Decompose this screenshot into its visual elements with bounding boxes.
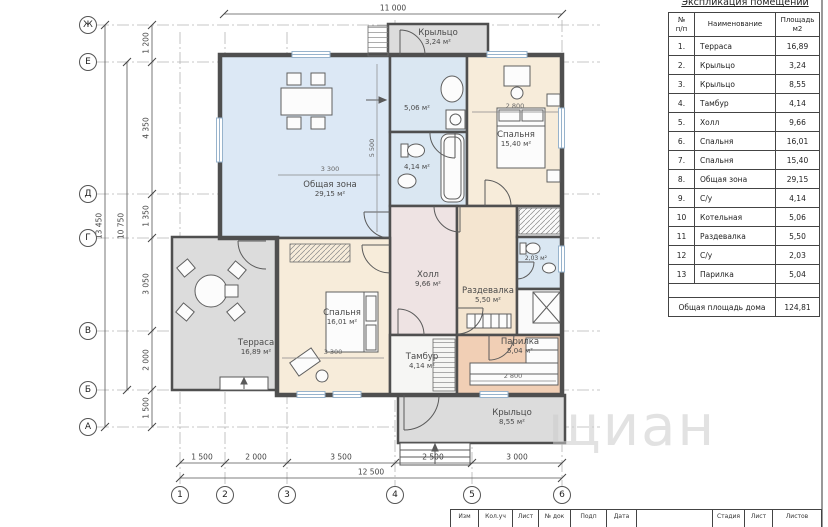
toilet-icon bbox=[401, 144, 425, 157]
room-living bbox=[220, 55, 390, 238]
axis-letter: Г bbox=[79, 229, 97, 247]
table-cell: 1. bbox=[669, 37, 695, 56]
table-cell: 7. bbox=[669, 151, 695, 170]
table-cell: 15,40 bbox=[776, 151, 820, 170]
bed-icon bbox=[326, 292, 378, 352]
titleblock-cell: Лист bbox=[745, 510, 773, 527]
axis-number: 6 bbox=[553, 486, 571, 504]
titleblock-cell: Подп bbox=[571, 510, 607, 527]
table-row: 8.Общая зона29,15 bbox=[669, 170, 820, 189]
table-row: 3.Крыльцо8,55 bbox=[669, 75, 820, 94]
table-row-total: Общая площадь дома 124,81 bbox=[669, 298, 820, 317]
titleblock-cell bbox=[637, 510, 713, 527]
table-cell: 12 bbox=[669, 246, 695, 265]
explication-table: № п/п Наименование Площадь м2 1.Терраса1… bbox=[668, 12, 820, 317]
bathtub-icon bbox=[441, 134, 464, 202]
table-cell: 9,66 bbox=[776, 113, 820, 132]
titleblock-cell: Кол.уч bbox=[479, 510, 513, 527]
table-cell: 11 bbox=[669, 227, 695, 246]
table-row: 10Котельная5,06 bbox=[669, 208, 820, 227]
axis-letter: Б bbox=[79, 381, 97, 399]
explication-body: 1.Терраса16,892.Крыльцо3,243.Крыльцо8,55… bbox=[669, 37, 820, 284]
table-cell: Крыльцо bbox=[695, 75, 776, 94]
table-cell: Терраса bbox=[695, 37, 776, 56]
dimension-label: 4 350 bbox=[142, 117, 151, 138]
dimension-label: 12 500 bbox=[358, 468, 384, 477]
doormat-icon bbox=[433, 339, 455, 391]
axis-number: 4 bbox=[386, 486, 404, 504]
table-cell: 4,14 bbox=[776, 94, 820, 113]
table-cell: Спальня bbox=[695, 151, 776, 170]
table-cell: 16,89 bbox=[776, 37, 820, 56]
dimension-label: 1 350 bbox=[142, 205, 151, 226]
table-cell: Котельная bbox=[695, 208, 776, 227]
table-cell: С/у bbox=[695, 189, 776, 208]
porch-steps-top-icon bbox=[368, 26, 388, 56]
table-cell: Спальня bbox=[695, 132, 776, 151]
table-row: 4.Тамбур4,14 bbox=[669, 94, 820, 113]
dimension-label: 1 200 bbox=[142, 32, 151, 53]
titleblock-cell: Стадия bbox=[713, 510, 745, 527]
axis-number: 3 bbox=[278, 486, 296, 504]
axis-number: 1 bbox=[171, 486, 189, 504]
axis-letter: В bbox=[79, 322, 97, 340]
table-header-row: № п/п Наименование Площадь м2 bbox=[669, 13, 820, 37]
wardrobe-icon bbox=[290, 244, 350, 262]
axis-letter: А bbox=[79, 418, 97, 436]
table-cell: 2,03 bbox=[776, 246, 820, 265]
table-row: 7.Спальня15,40 bbox=[669, 151, 820, 170]
titleblock-cell: Дата bbox=[607, 510, 637, 527]
table-cell: 5,50 bbox=[776, 227, 820, 246]
table-cell: Парилка bbox=[695, 265, 776, 284]
explication-panel: Экспликация помещений № п/п Наименование… bbox=[668, 0, 822, 317]
dimension-label: 2 800 bbox=[506, 102, 525, 110]
floorplan-sheet: Крыльцо 3,24 м² Общая зона 29,15 м² Спал… bbox=[0, 0, 828, 527]
table-cell: 5. bbox=[669, 113, 695, 132]
dimension-label: 11 000 bbox=[380, 4, 406, 13]
table-cell: Тамбур bbox=[695, 94, 776, 113]
table-cell: 3. bbox=[669, 75, 695, 94]
dimension-label: 3 000 bbox=[506, 453, 527, 462]
table-row: 1.Терраса16,89 bbox=[669, 37, 820, 56]
table-cell: 8,55 bbox=[776, 75, 820, 94]
table-cell: 16,01 bbox=[776, 132, 820, 151]
table-cell: 29,15 bbox=[776, 170, 820, 189]
dimension-label: 2 500 bbox=[422, 453, 443, 462]
table-cell bbox=[669, 284, 776, 298]
dimension-label: 1 500 bbox=[191, 453, 212, 462]
table-row: 6.Спальня16,01 bbox=[669, 132, 820, 151]
table-cell: 2. bbox=[669, 56, 695, 75]
room-porch-bottom bbox=[398, 395, 565, 443]
dimension-label: 2 000 bbox=[245, 453, 266, 462]
dimension-label: 1 500 bbox=[142, 397, 151, 418]
table-row: 13Парилка5,04 bbox=[669, 265, 820, 284]
table-cell: С/у bbox=[695, 246, 776, 265]
table-cell: 6. bbox=[669, 132, 695, 151]
dimension-label: 10 750 bbox=[117, 213, 126, 239]
table-cell: 10 bbox=[669, 208, 695, 227]
table-row: 2.Крыльцо3,24 bbox=[669, 56, 820, 75]
table-cell: 8. bbox=[669, 170, 695, 189]
table-cell: Общая зона bbox=[695, 170, 776, 189]
table-cell: Крыльцо bbox=[695, 56, 776, 75]
dimension-label: 2 800 bbox=[504, 372, 523, 380]
column-header: № п/п bbox=[669, 13, 695, 37]
table-cell: Холл bbox=[695, 113, 776, 132]
column-header: Площадь м2 bbox=[776, 13, 820, 37]
axis-number: 2 bbox=[216, 486, 234, 504]
bench-icon bbox=[467, 314, 511, 328]
axis-letter: Ж bbox=[79, 16, 97, 34]
table-row: 12С/у2,03 bbox=[669, 246, 820, 265]
table-row: 5.Холл9,66 bbox=[669, 113, 820, 132]
axis-number: 5 bbox=[463, 486, 481, 504]
table-cell: Раздевалка bbox=[695, 227, 776, 246]
table-cell: 3,24 bbox=[776, 56, 820, 75]
dimension-label: 3 300 bbox=[324, 348, 343, 356]
table-cell: 5,06 bbox=[776, 208, 820, 227]
titleblock-cell: Лист bbox=[513, 510, 539, 527]
table-cell: 9. bbox=[669, 189, 695, 208]
table-row: 9.С/у4,14 bbox=[669, 189, 820, 208]
sink-icon bbox=[398, 174, 416, 188]
dimension-label: 3 300 bbox=[321, 165, 340, 173]
titleblock-cell: Листов bbox=[773, 510, 822, 527]
table-row-empty bbox=[669, 284, 820, 298]
room-hall bbox=[390, 206, 457, 335]
table-cell bbox=[776, 284, 820, 298]
table-cell: 4. bbox=[669, 94, 695, 113]
table-cell: 4,14 bbox=[776, 189, 820, 208]
closet-icon bbox=[519, 208, 560, 234]
equipment-box-icon bbox=[533, 292, 560, 323]
dimension-label: 5 500 bbox=[368, 139, 376, 158]
axis-letter: Е bbox=[79, 53, 97, 71]
room-porch-top bbox=[388, 24, 488, 57]
dimension-label: 3 500 bbox=[330, 453, 351, 462]
sink-icon bbox=[543, 263, 556, 273]
column-header: Наименование bbox=[695, 13, 776, 37]
toilet-icon bbox=[520, 243, 540, 254]
titleblock-cell: № док bbox=[539, 510, 571, 527]
axis-letter: Д bbox=[79, 185, 97, 203]
table-row: 11Раздевалка5,50 bbox=[669, 227, 820, 246]
titleblock-cell: Изм bbox=[451, 510, 479, 527]
titleblock: Изм Кол.уч Лист № док Подп Дата Стадия Л… bbox=[450, 509, 822, 527]
explication-title: Экспликация помещений bbox=[668, 0, 822, 8]
dimension-label: 2 000 bbox=[142, 349, 151, 370]
total-label: Общая площадь дома bbox=[669, 298, 776, 317]
dimension-label: 3 050 bbox=[142, 273, 151, 294]
table-cell: 13 bbox=[669, 265, 695, 284]
table-cell: 5,04 bbox=[776, 265, 820, 284]
total-value: 124,81 bbox=[776, 298, 820, 317]
